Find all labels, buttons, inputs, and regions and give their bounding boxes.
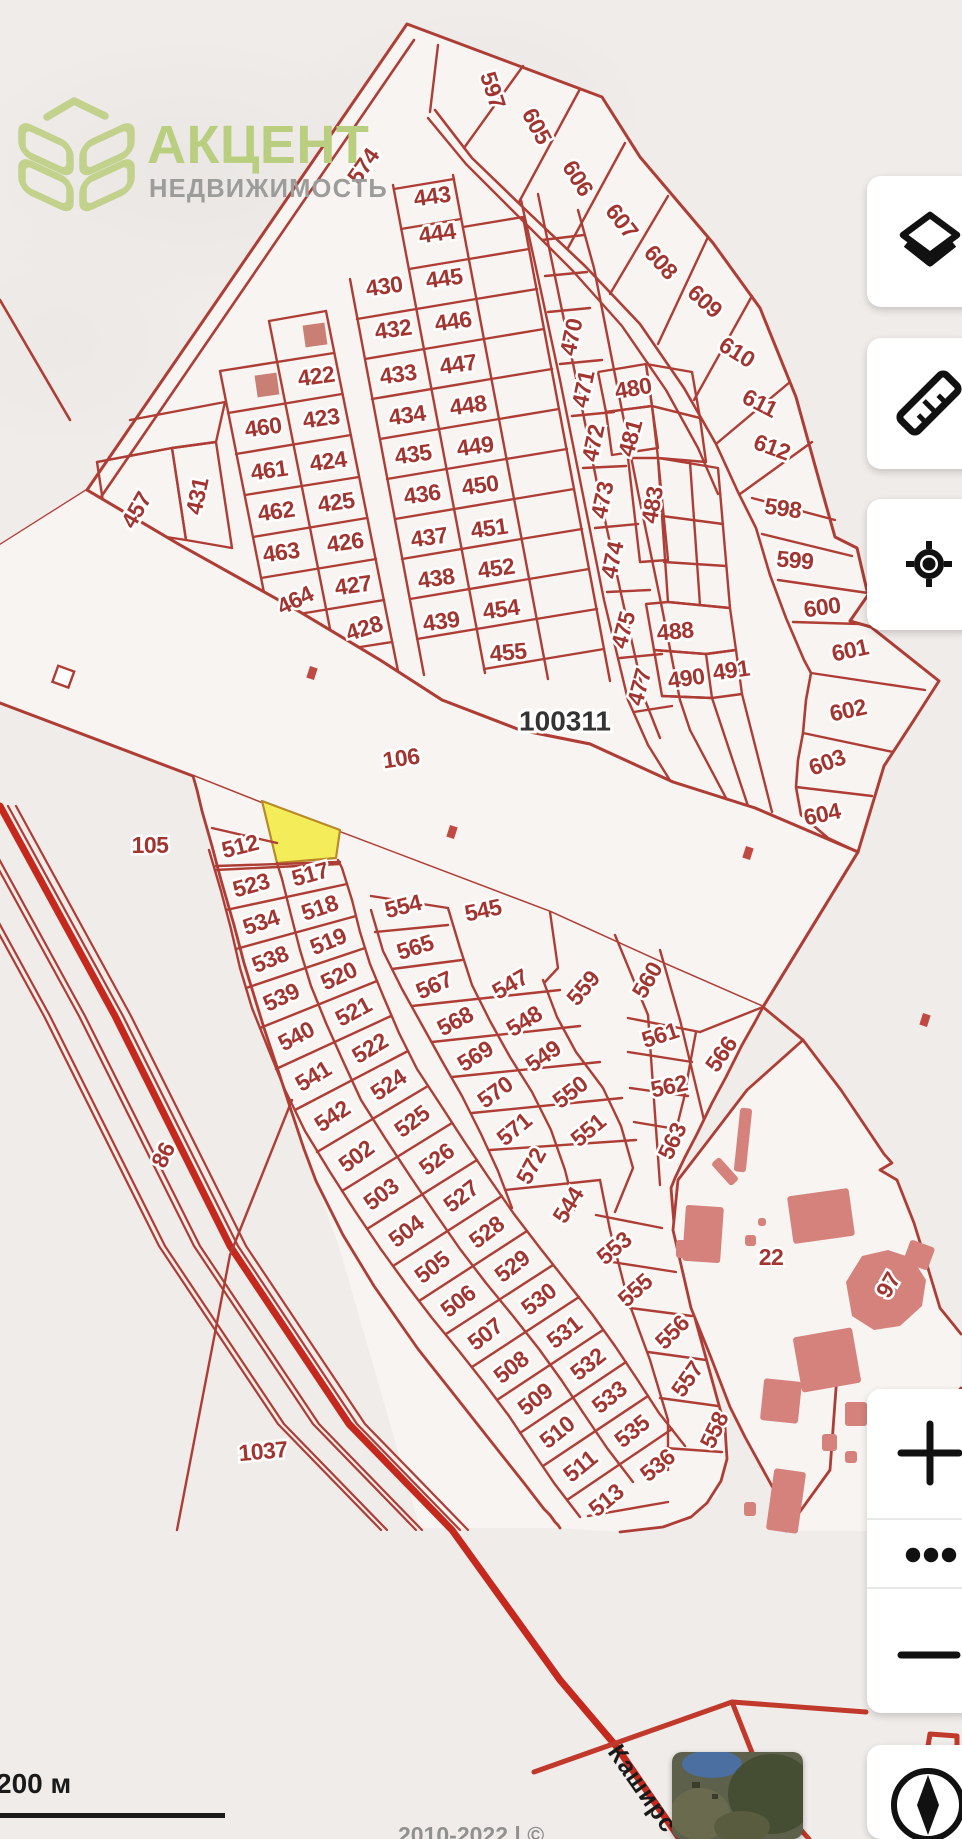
svg-text:430: 430 xyxy=(364,271,404,302)
svg-text:106: 106 xyxy=(381,743,421,774)
svg-text:1037: 1037 xyxy=(237,1436,288,1466)
svg-text:105: 105 xyxy=(132,832,170,858)
svg-text:599: 599 xyxy=(775,545,814,574)
svg-text:425: 425 xyxy=(316,486,357,517)
svg-text:432: 432 xyxy=(373,314,413,345)
svg-text:427: 427 xyxy=(333,570,373,601)
svg-text:600: 600 xyxy=(802,592,842,623)
svg-text:488: 488 xyxy=(655,616,695,645)
svg-text:438: 438 xyxy=(416,562,457,593)
svg-text:598: 598 xyxy=(763,493,804,524)
svg-text:450: 450 xyxy=(460,470,500,501)
svg-text:445: 445 xyxy=(424,262,465,293)
svg-text:433: 433 xyxy=(378,359,418,390)
svg-text:НЕДВИЖИМОСТЬ: НЕДВИЖИМОСТЬ xyxy=(149,175,388,203)
svg-text:443: 443 xyxy=(412,181,452,212)
svg-text:455: 455 xyxy=(488,637,528,666)
svg-text:490: 490 xyxy=(666,663,706,694)
svg-text:422: 422 xyxy=(296,361,336,392)
svg-text:200 м: 200 м xyxy=(0,1768,71,1799)
svg-text:АКЦЕНТ: АКЦЕНТ xyxy=(147,115,369,175)
svg-text:446: 446 xyxy=(433,306,473,337)
svg-text:426: 426 xyxy=(325,527,365,558)
svg-text:449: 449 xyxy=(455,431,495,462)
svg-text:454: 454 xyxy=(481,593,522,624)
svg-text:461: 461 xyxy=(249,454,290,485)
svg-text:460: 460 xyxy=(243,412,283,443)
svg-text:448: 448 xyxy=(448,389,489,420)
svg-text:491: 491 xyxy=(711,654,752,685)
svg-text:424: 424 xyxy=(308,445,349,476)
svg-text:22: 22 xyxy=(759,1244,784,1270)
svg-text:423: 423 xyxy=(301,403,341,434)
svg-text:434: 434 xyxy=(387,399,428,430)
svg-text:435: 435 xyxy=(393,438,434,469)
svg-text:463: 463 xyxy=(261,537,301,568)
svg-text:437: 437 xyxy=(409,522,449,553)
svg-text:100311: 100311 xyxy=(519,706,611,737)
svg-text:436: 436 xyxy=(402,479,442,510)
svg-text:444: 444 xyxy=(417,217,458,248)
svg-text:2010-2022 | ©: 2010-2022 | © xyxy=(398,1822,544,1839)
svg-text:452: 452 xyxy=(476,553,516,584)
svg-text:439: 439 xyxy=(421,606,461,637)
svg-text:462: 462 xyxy=(256,496,296,527)
svg-text:451: 451 xyxy=(469,512,510,543)
svg-text:447: 447 xyxy=(438,349,478,380)
